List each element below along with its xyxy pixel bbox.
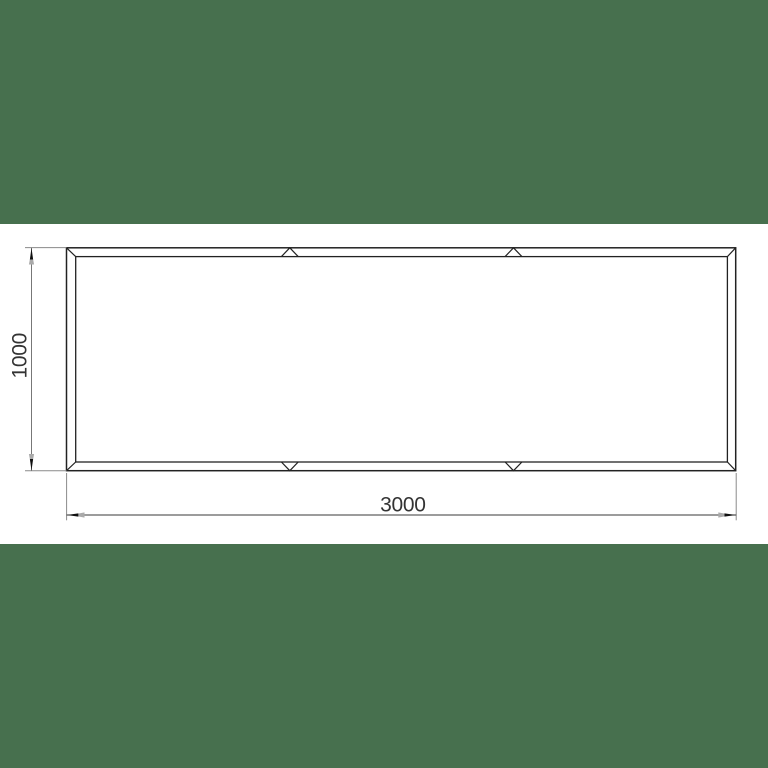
svg-text:3000: 3000 [380,493,426,516]
svg-text:1000: 1000 [8,333,31,379]
